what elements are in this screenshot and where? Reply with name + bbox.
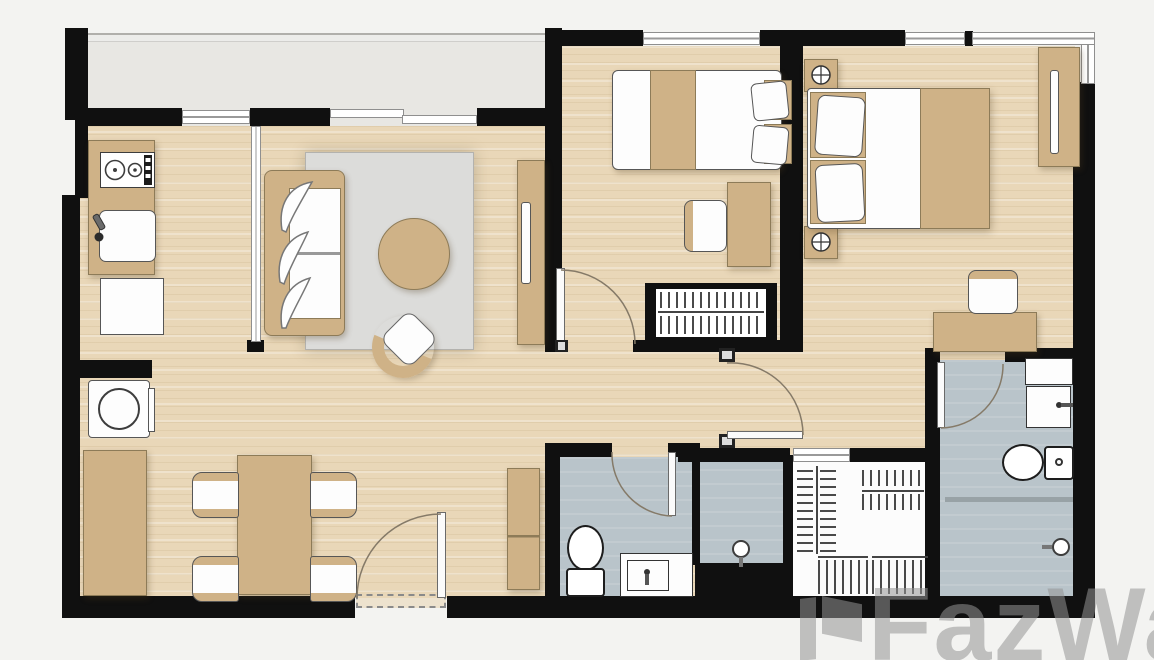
toilet-bowl [1002, 444, 1044, 481]
clothes-hangers [660, 316, 762, 334]
entrance-threshold [356, 594, 446, 608]
wall [477, 108, 552, 126]
window [643, 32, 760, 45]
sofa-pillow-leaves [270, 178, 320, 330]
dressing-desk [933, 312, 1037, 352]
master-bathroom-door-leaf [937, 362, 945, 428]
coffee-table [378, 218, 450, 290]
stove [100, 152, 155, 188]
wall [850, 448, 935, 462]
basin-faucet-icon [1053, 398, 1075, 412]
clothes-rail [818, 556, 868, 558]
closet-sliding-door [793, 448, 850, 462]
wall [65, 28, 88, 120]
balcony-railing [88, 33, 552, 42]
wall [760, 30, 905, 46]
wall [562, 30, 643, 46]
wall [80, 360, 152, 378]
dining-chair [192, 472, 239, 518]
wall [695, 563, 790, 598]
bedroom2-door-leaf [556, 268, 565, 342]
wall [80, 108, 182, 126]
table-lamp-icon [810, 64, 832, 86]
refrigerator [100, 278, 164, 335]
pillow [815, 163, 866, 223]
wall [250, 108, 330, 126]
wall [545, 443, 560, 600]
tv [521, 202, 531, 284]
tv [1050, 70, 1059, 154]
corner-window [1081, 44, 1095, 84]
toilet-tank [566, 568, 605, 597]
desk [727, 182, 771, 267]
dining-chair [310, 472, 357, 518]
toilet-flush-button [1055, 458, 1063, 466]
tv-console [1038, 47, 1080, 167]
wardrobe [656, 289, 766, 337]
clothes-hangers [797, 468, 813, 552]
dining-chair [310, 556, 357, 602]
glass-partition [251, 126, 261, 342]
shower-stem [1042, 545, 1052, 549]
window [182, 110, 250, 124]
clothes-hangers [862, 494, 924, 510]
clothes-rail [816, 466, 818, 554]
basin-faucet-icon [640, 566, 654, 588]
toilet-bowl [567, 525, 604, 571]
clothes-hangers [820, 468, 836, 552]
desk-chair [968, 270, 1018, 314]
pillow [750, 80, 790, 122]
corner-window [972, 32, 1095, 45]
clothes-rail [862, 490, 924, 492]
shoe-cabinet [507, 468, 540, 590]
washing-machine-drum [98, 388, 140, 430]
wall [783, 455, 793, 598]
clothes-hangers [818, 560, 868, 594]
wall [62, 195, 80, 598]
sliding-door [402, 115, 477, 124]
clothes-hangers [660, 292, 762, 308]
shower-stem [739, 557, 743, 567]
sliding-door [330, 109, 404, 118]
wall [692, 455, 700, 565]
double-bed-blanket [920, 88, 990, 229]
bathroom-shelf [1025, 358, 1073, 385]
window [905, 32, 965, 45]
single-bed-blanket [650, 70, 696, 170]
entrance-door-leaf [437, 512, 446, 598]
clothes-hangers [872, 560, 928, 594]
floor-plan: FazWaz [0, 0, 1154, 660]
door-jamb [555, 340, 568, 352]
clothes-rail [872, 556, 928, 558]
faucet-icon [88, 212, 112, 246]
table-lamp-icon [810, 231, 832, 253]
shower-divider [945, 497, 1073, 502]
door-jamb [719, 348, 735, 362]
sideboard-cabinet [83, 450, 147, 596]
shower-head [1052, 538, 1070, 556]
washing-machine-panel [148, 388, 155, 432]
desk-chair [684, 200, 727, 252]
master-door-leaf [727, 431, 803, 439]
bathroom-door-leaf [668, 452, 676, 516]
clothes-hangers [862, 470, 924, 486]
dining-chair [192, 556, 239, 602]
wall [75, 118, 88, 198]
clothes-rail [658, 311, 764, 313]
lounge-chair [368, 308, 448, 388]
shower-head [732, 540, 750, 558]
pillow [750, 125, 789, 166]
dining-table [237, 455, 312, 595]
pillow [814, 94, 866, 157]
